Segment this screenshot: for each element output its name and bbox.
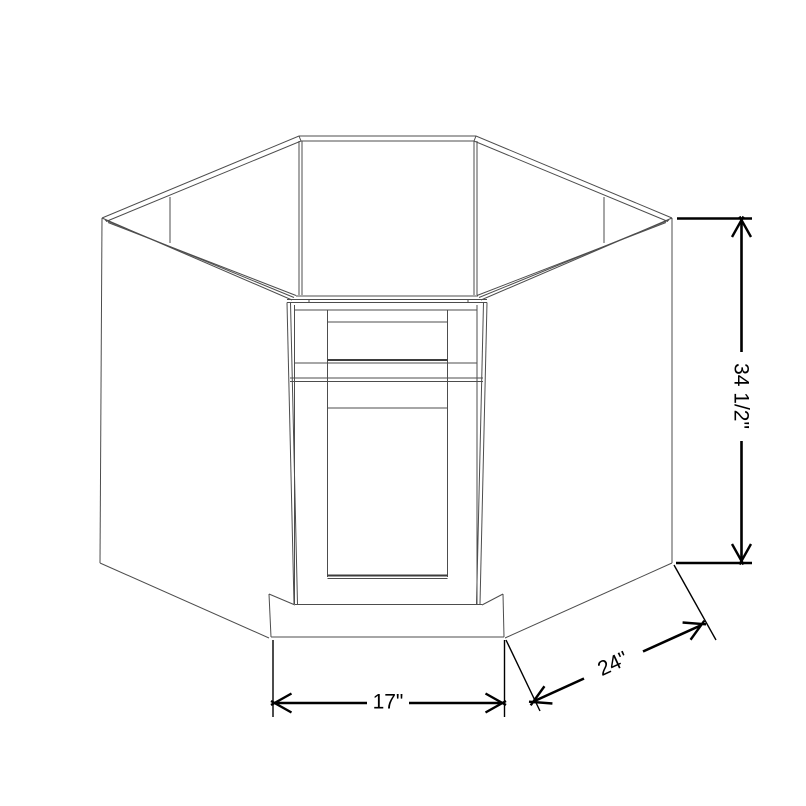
face-frame (287, 296, 487, 605)
right-side-panel (505, 218, 672, 638)
dimension-height: 34 1/2" (676, 217, 753, 565)
corner-cabinet-diagram: 34 1/2" 17" 24" (0, 0, 806, 806)
door (328, 408, 448, 579)
width-dimension-label: 17" (373, 691, 404, 714)
drawer-front (295, 310, 478, 363)
height-dimension-label: 34 1/2" (730, 363, 753, 429)
toe-kick (269, 594, 504, 637)
depth-dimension-label: 24" (594, 647, 632, 681)
left-side-panel (100, 218, 269, 638)
top-rim (102, 136, 672, 300)
cabinet-outline (100, 136, 672, 638)
dimension-depth: 24" (506, 565, 716, 712)
cabinet-diagram-page: 34 1/2" 17" 24" (0, 0, 806, 806)
dimension-width: 17" (271, 640, 506, 717)
